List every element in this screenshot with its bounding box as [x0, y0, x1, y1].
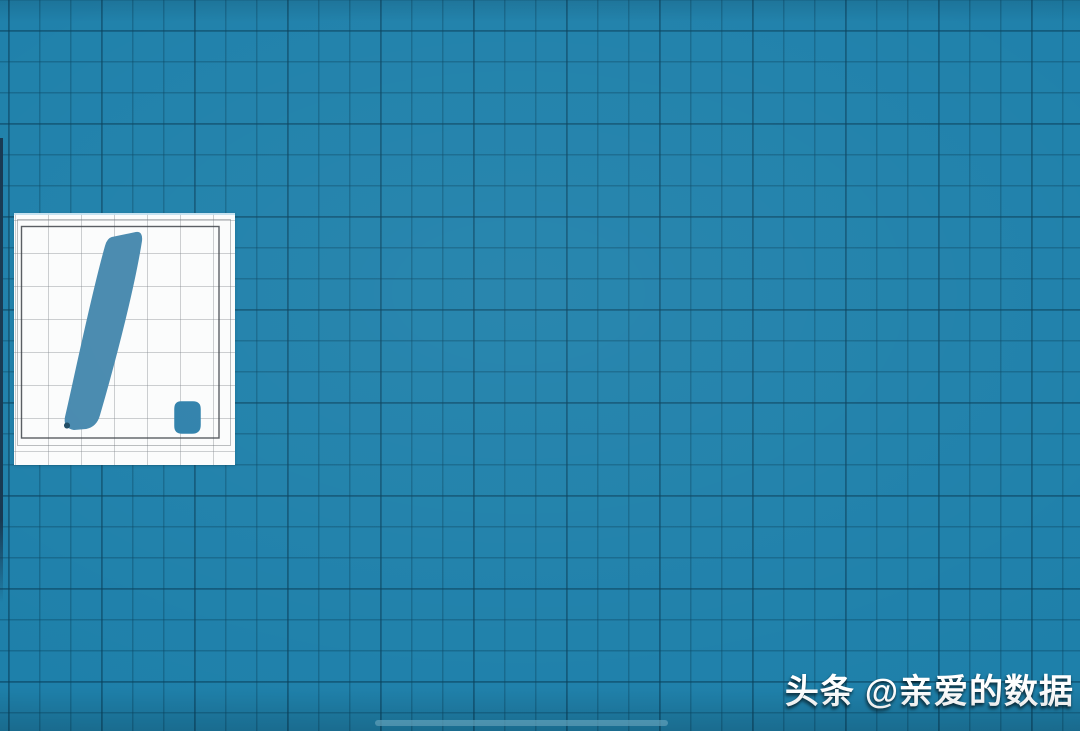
ink-blot — [64, 422, 70, 428]
home-indicator[interactable] — [375, 720, 668, 726]
left-edge-artifact — [0, 138, 3, 603]
sticky-note[interactable] — [14, 213, 235, 465]
watermark: 头条@亲爱的数据 — [785, 664, 1074, 713]
watermark-platform-label: 头条 — [785, 673, 855, 711]
handwriting-svg — [14, 213, 235, 465]
whiteboard-canvas[interactable]: 头条@亲爱的数据 — [0, 0, 1080, 731]
handwritten-stroke-one — [66, 233, 141, 429]
handwritten-period-dot — [175, 402, 200, 433]
watermark-handle-label: @亲爱的数据 — [865, 673, 1074, 711]
